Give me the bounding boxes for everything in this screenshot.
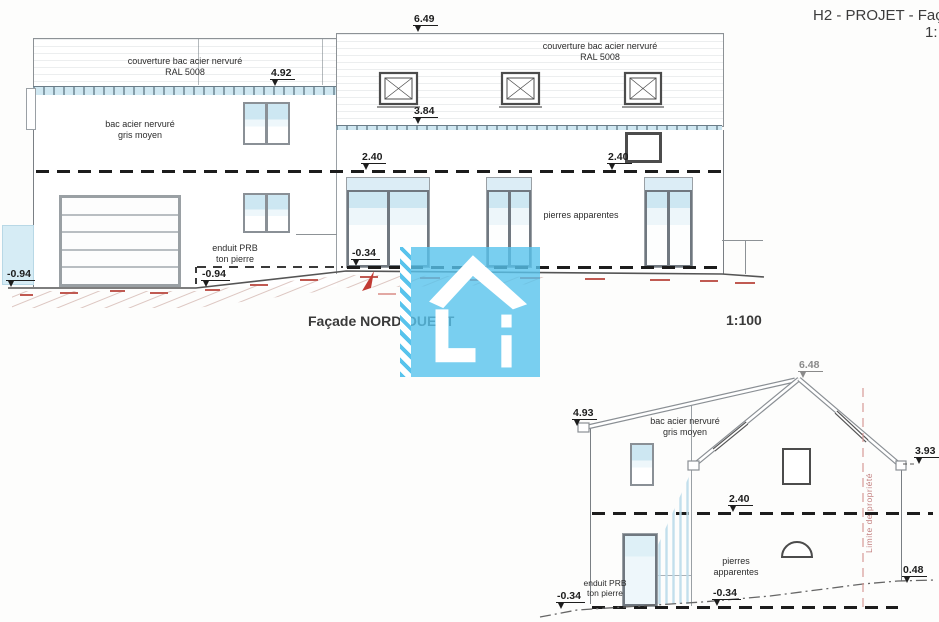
side-dim-240: 2.40 (728, 494, 753, 512)
side-label-stone: pierres apparentes (700, 556, 772, 577)
side-ledge-line (658, 575, 691, 576)
label-wall-upper-left: bac acier nervuré gris moyen (85, 119, 195, 140)
dim-240-left: 2.40 (361, 152, 386, 170)
side-floor-line (592, 606, 898, 609)
red-ground-arrow (362, 271, 396, 294)
garage-slat (62, 251, 178, 269)
house-logo-icon (411, 247, 540, 377)
window-pane (632, 445, 652, 484)
ledge-line (296, 234, 337, 235)
company-logo (400, 247, 540, 377)
side-dim-ground-left: -0.34 (556, 591, 585, 609)
door-pane (667, 192, 690, 265)
sheet-title: H2 - PROJET - Façade (813, 7, 939, 24)
dim-ground-floor: -0.34 (351, 248, 380, 266)
level-line-step-vertical (195, 267, 197, 285)
property-line-label: Limite de propriété (864, 458, 874, 568)
side-arch-window (782, 542, 812, 557)
side-dim-eaves-left: 4.93 (572, 408, 597, 426)
side-dim-ground-right: 0.48 (902, 565, 927, 583)
label-wall-stone: pierres apparentes (541, 210, 621, 221)
label-wall-render: enduit PRB ton pierre (193, 243, 277, 264)
garage-slat (62, 233, 178, 251)
side-level-line-240 (592, 512, 933, 515)
drawing-sheet: couverture bac acier nervuré RAL 5008 co… (0, 0, 939, 622)
low-wall-edge (745, 240, 746, 274)
label-roof-right: couverture bac acier nervuré RAL 5008 (515, 41, 685, 62)
side-shadow-hatch (658, 472, 691, 604)
window-pane (265, 104, 288, 143)
garage-slat (62, 268, 178, 284)
downspout (26, 88, 36, 130)
dim-ridge-main: 6.49 (413, 14, 438, 32)
dim-240-right: 2.40 (607, 152, 632, 170)
window-pane (265, 195, 288, 231)
window-upper-left (243, 102, 290, 145)
dim-eaves-right: 3.84 (413, 106, 438, 124)
side-roof-bands (578, 379, 906, 470)
dim-ground-mid: -0.94 (201, 269, 230, 287)
window-pane (245, 195, 265, 231)
side-dim-ridge: 6.48 (798, 360, 823, 378)
window-pane (245, 104, 265, 143)
label-roof-left: couverture bac acier nervuré RAL 5008 (110, 56, 260, 77)
logo-stripe (400, 247, 411, 377)
dim-eaves-left: 4.92 (270, 68, 295, 86)
garage-door (59, 195, 181, 287)
side-door (622, 533, 658, 607)
door-pane (625, 536, 655, 604)
glazed-door-3 (644, 177, 693, 268)
door-pane (647, 192, 667, 265)
elevation-scale: 1:100 (726, 312, 762, 328)
side-dim-floor: -0.34 (712, 588, 741, 606)
dim-ground-left: -0.94 (6, 269, 35, 287)
window-lower-left (243, 193, 290, 233)
garage-slat (62, 198, 178, 216)
low-wall-top (722, 240, 763, 241)
side-window-tall (630, 443, 654, 486)
side-right-wall (901, 467, 902, 581)
roof-seam (322, 39, 323, 85)
side-label-render: enduit PRB ton pierre (583, 579, 627, 598)
level-line-240-main (36, 170, 722, 173)
side-window-gable (782, 448, 811, 485)
sheet-scale: 1: (925, 24, 938, 41)
side-label-roof: bac acier nervuré gris moyen (630, 416, 740, 437)
side-dim-eaves-right: 3.93 (914, 446, 939, 464)
garage-slat (62, 216, 178, 234)
